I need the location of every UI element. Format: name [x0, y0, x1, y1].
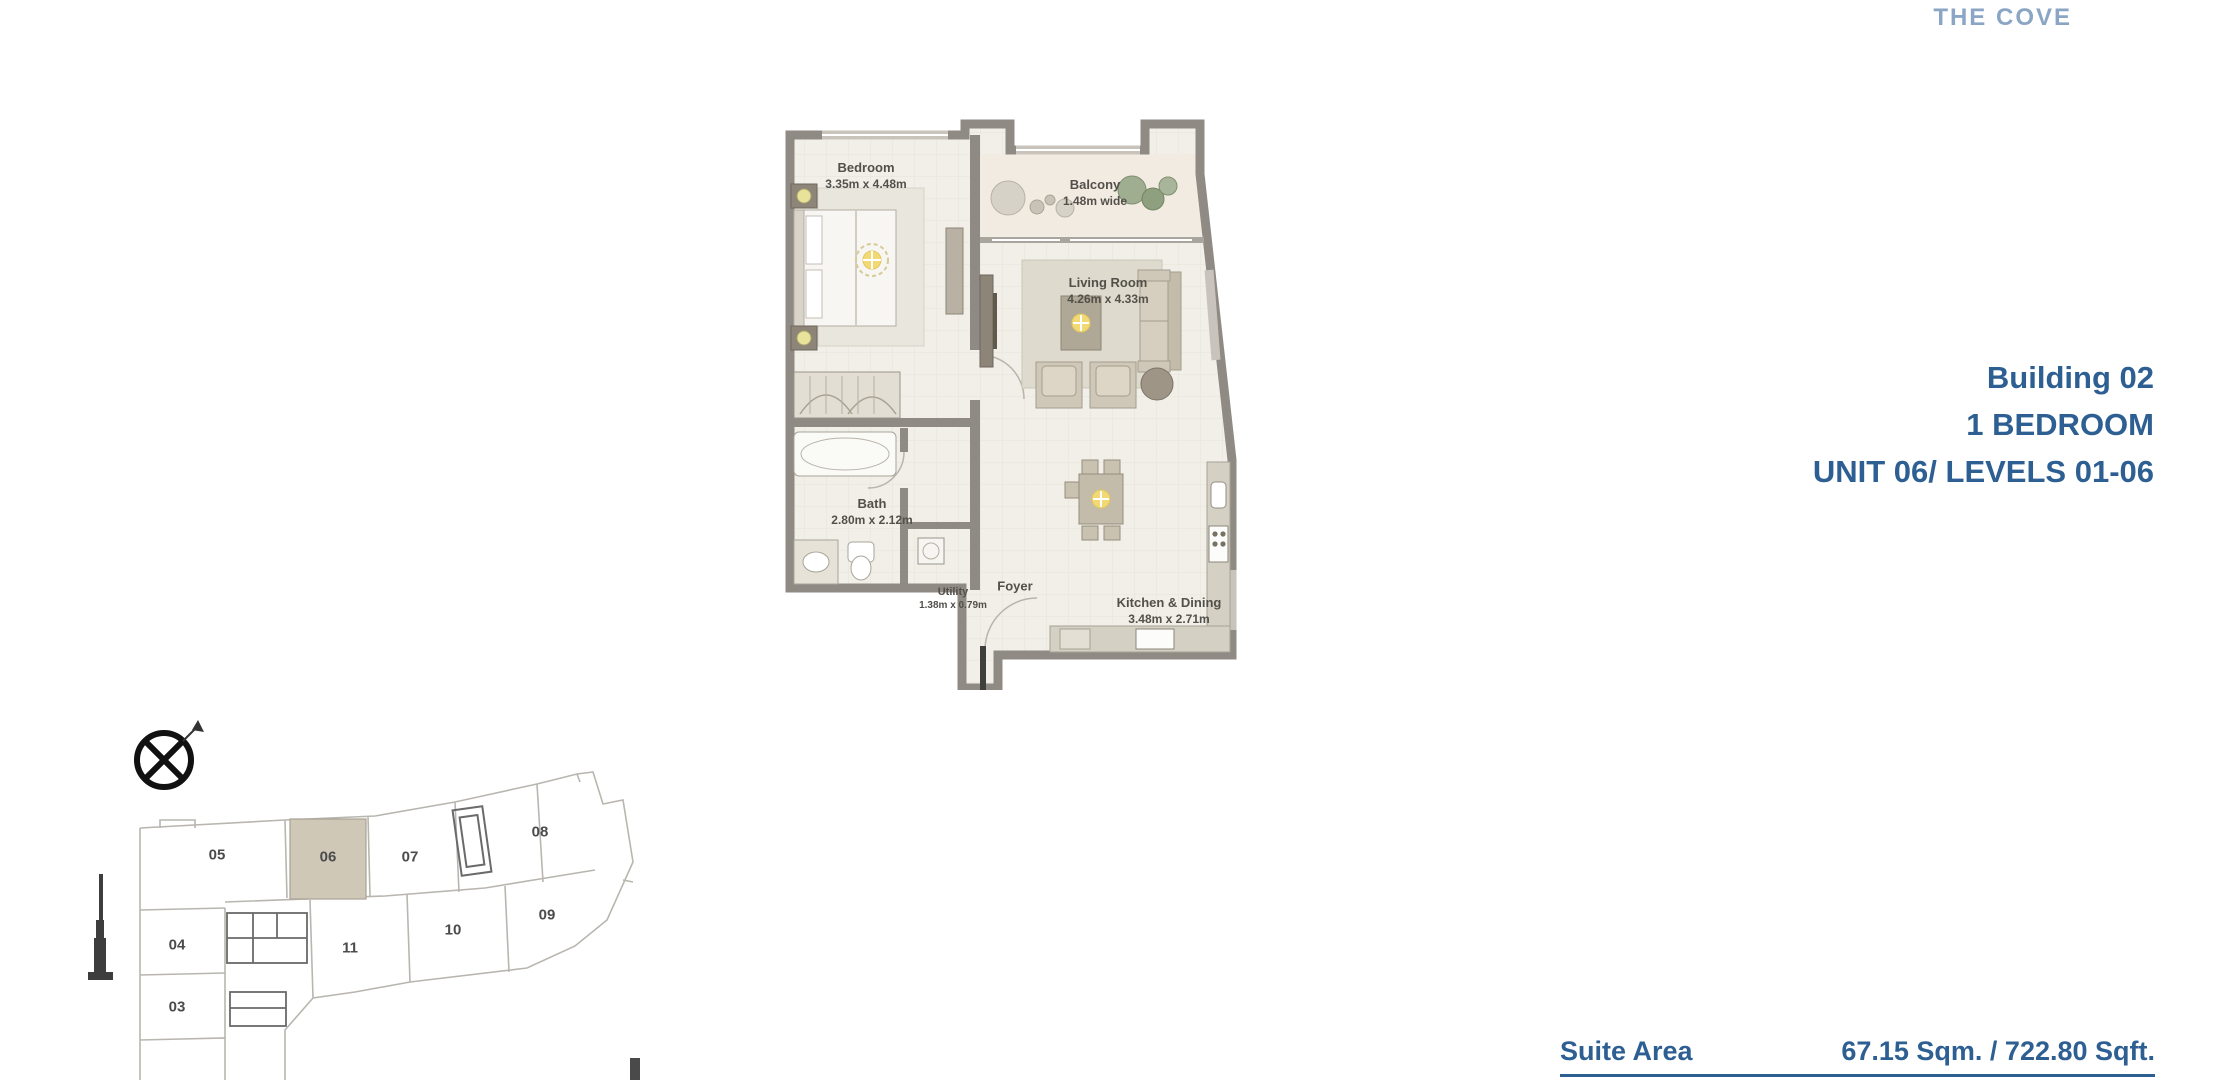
suite-area-row: Suite Area 67.15 Sqm. / 722.80 Sqft.	[1560, 1036, 2155, 1077]
unit-type: 1 BEDROOM	[1813, 401, 2154, 448]
key-plan: 05 06 07 08 04 11 10 09 03	[125, 770, 655, 1080]
building-title: Building 02	[1813, 354, 2154, 401]
floor-plan-drawing	[760, 110, 1340, 690]
section-marker	[86, 874, 116, 990]
suite-area-label: Suite Area	[1560, 1036, 1693, 1067]
brand-logo: THE COVE	[1933, 4, 2072, 32]
key-plan-drawing	[125, 770, 655, 1080]
floor-plan: Bedroom 3.35m x 4.48m Balcony 1.48m wide…	[760, 110, 1340, 690]
suite-area-value: 67.15 Sqm. / 722.80 Sqft.	[1841, 1036, 2155, 1067]
unit-info-block: Building 02 1 BEDROOM UNIT 06/ LEVELS 01…	[1813, 354, 2154, 495]
unit-levels: UNIT 06/ LEVELS 01-06	[1813, 448, 2154, 495]
